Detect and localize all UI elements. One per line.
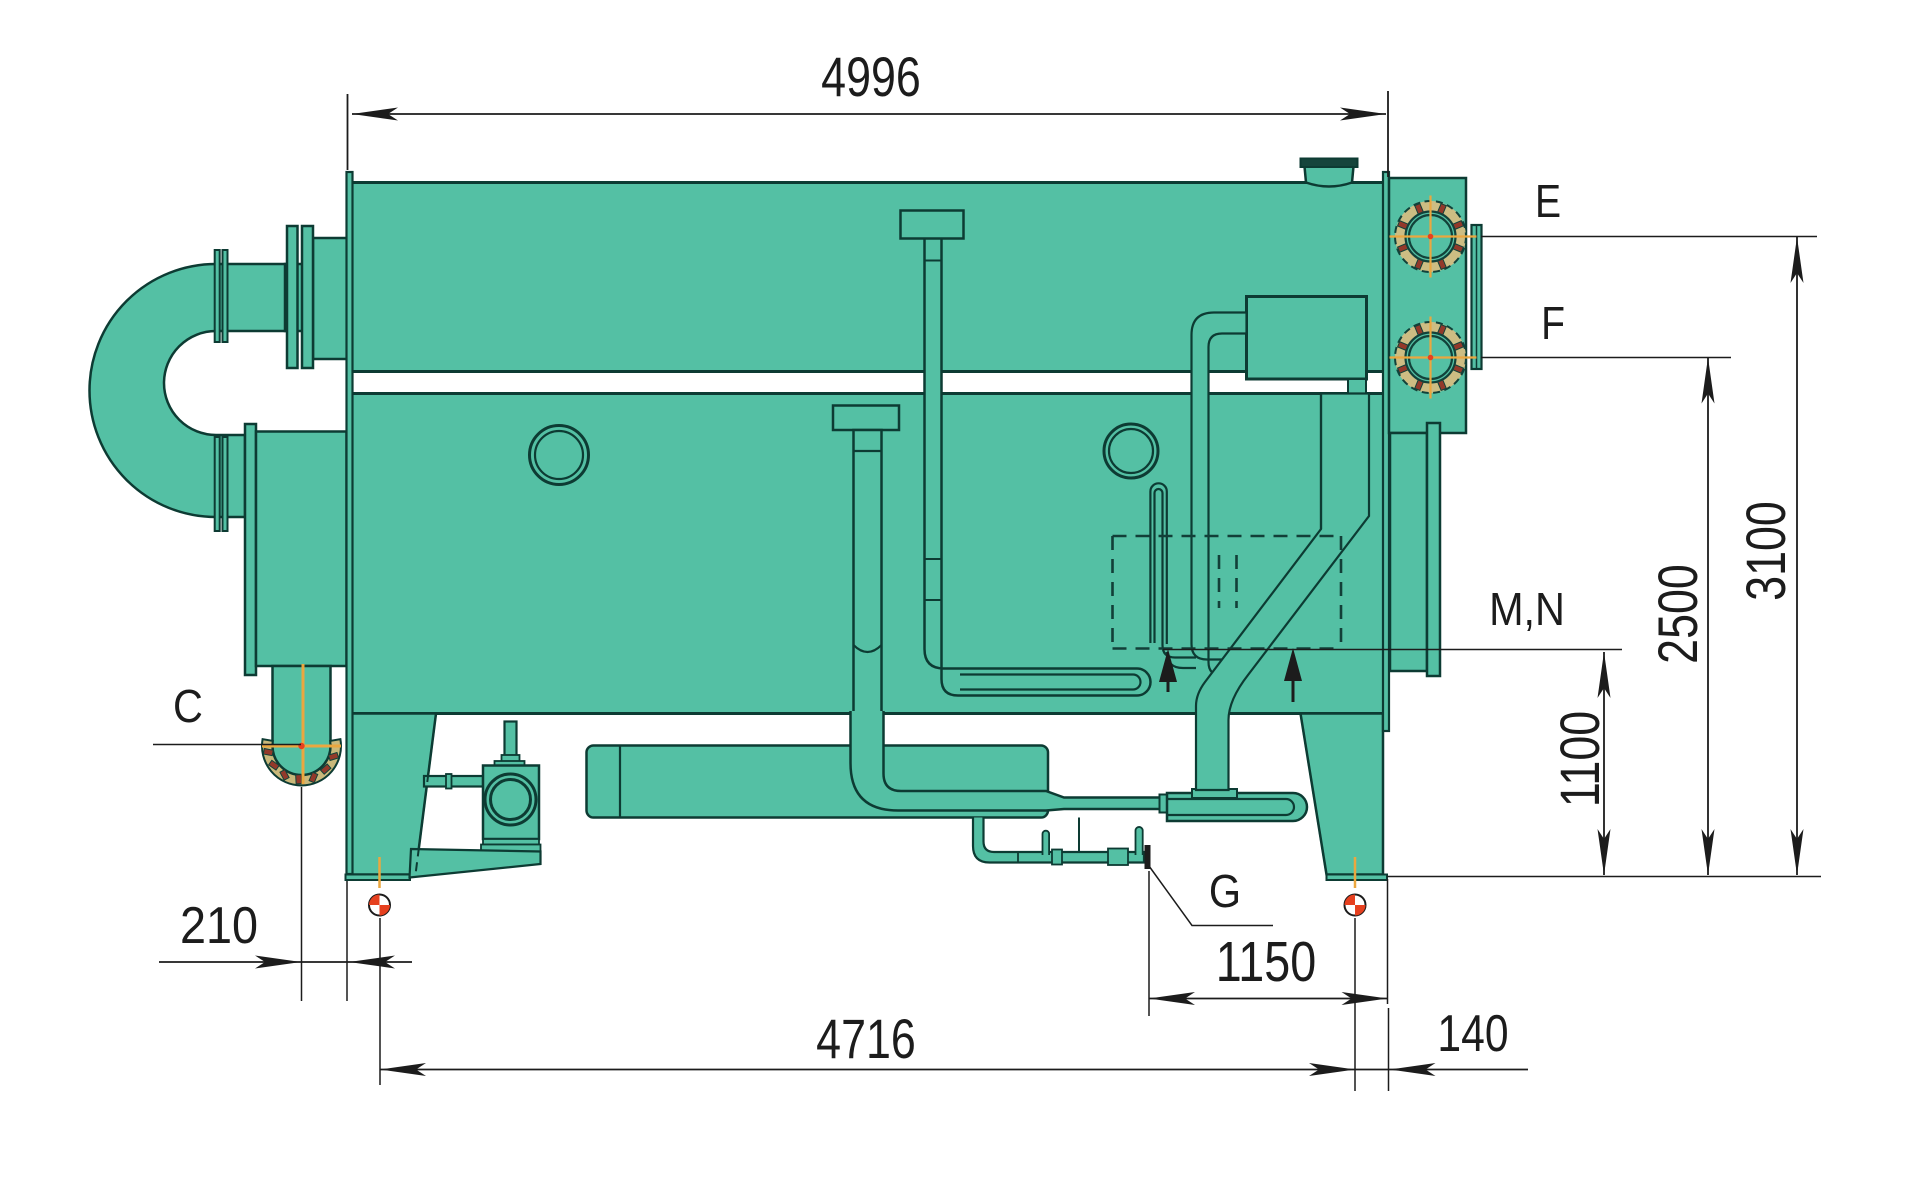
svg-text:F: F	[1541, 298, 1565, 350]
svg-text:G: G	[1209, 866, 1241, 918]
svg-text:1150: 1150	[1216, 931, 1316, 994]
svg-text:2500: 2500	[1646, 564, 1709, 664]
svg-text:4996: 4996	[821, 45, 921, 108]
svg-text:4716: 4716	[816, 1007, 916, 1070]
svg-text:E: E	[1535, 176, 1561, 228]
svg-text:1100: 1100	[1548, 711, 1611, 807]
svg-text:M,N: M,N	[1489, 584, 1565, 636]
svg-text:210: 210	[180, 897, 258, 955]
svg-text:3100: 3100	[1734, 501, 1797, 601]
svg-text:C: C	[173, 681, 203, 733]
svg-text:140: 140	[1437, 1005, 1508, 1063]
